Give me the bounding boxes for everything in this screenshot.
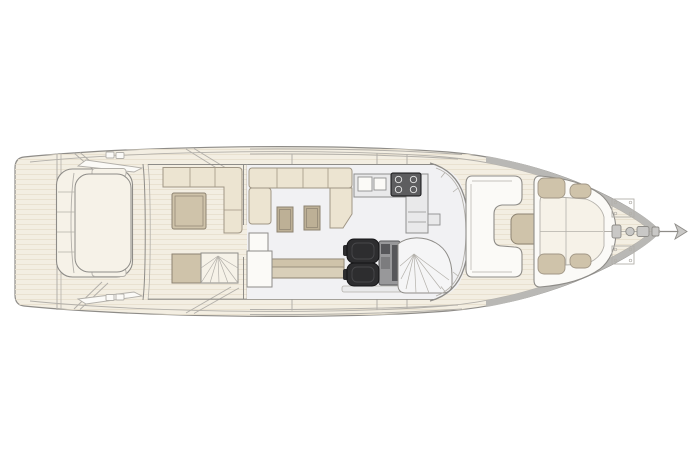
console-module (392, 245, 398, 281)
windlass-motor (612, 225, 621, 238)
cleat (106, 152, 114, 158)
deck-plan-drawing (0, 0, 699, 466)
windlass-gypsy (626, 227, 634, 235)
console-module (381, 257, 390, 269)
cooktop-body (391, 173, 421, 196)
stern-sunpad (57, 169, 133, 278)
cleat (116, 153, 124, 159)
chain-stopper (637, 227, 649, 237)
headrest-pillow (570, 254, 591, 268)
cooktop (391, 173, 421, 196)
sink-bowl (374, 178, 386, 190)
helm-platform (342, 286, 403, 292)
salon-sofa-back (249, 168, 352, 188)
cockpit-cabinet (172, 254, 201, 283)
sideboard-top (272, 259, 344, 267)
sink-bowl (358, 177, 372, 191)
salon-cabinet-upper (249, 233, 268, 251)
helm-seat (343, 239, 379, 263)
cleat (106, 295, 114, 301)
salon-sofa-left-arm (249, 188, 271, 224)
headrest-pillow (538, 178, 565, 198)
headrest-pillow (570, 184, 591, 198)
salon-cabinet (247, 251, 272, 287)
helm-seat (343, 263, 379, 286)
flybridge-stairs (201, 253, 238, 283)
cleat (116, 294, 124, 300)
bow-roller (652, 227, 659, 236)
stern-sunpad-cushion (75, 174, 131, 272)
deck-plan (0, 0, 699, 466)
galley-counter-return (428, 214, 440, 225)
cockpit-table (172, 193, 206, 229)
headrest-pillow (538, 254, 565, 274)
console-module (381, 244, 390, 254)
helm-station (342, 239, 403, 292)
bow-lounge (466, 176, 616, 287)
